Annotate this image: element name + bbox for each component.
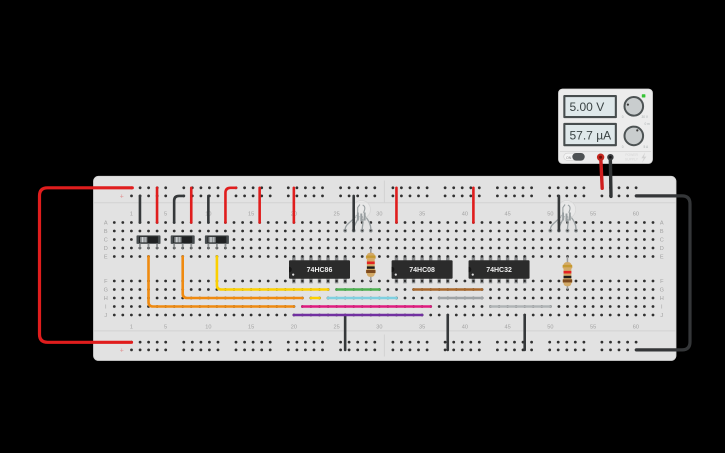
- svg-text:J: J: [104, 313, 107, 319]
- svg-text:1: 1: [130, 324, 133, 330]
- svg-text:74HC32: 74HC32: [486, 267, 512, 274]
- svg-text:D: D: [660, 246, 664, 252]
- svg-text:60: 60: [633, 212, 639, 218]
- svg-text:G: G: [104, 288, 108, 294]
- svg-text:H: H: [660, 296, 664, 302]
- svg-text:55: 55: [590, 324, 596, 330]
- svg-text:5: 5: [164, 212, 167, 218]
- svg-text:30: 30: [376, 324, 382, 330]
- svg-text:C: C: [660, 238, 664, 244]
- svg-text:B: B: [104, 229, 108, 235]
- svg-text:F: F: [104, 279, 108, 285]
- svg-text:ON: ON: [566, 156, 572, 160]
- svg-text:50: 50: [547, 212, 553, 218]
- svg-text:A: A: [660, 221, 664, 227]
- svg-text:A: A: [104, 221, 108, 227]
- svg-text:74HC86: 74HC86: [307, 267, 333, 274]
- svg-text:55: 55: [590, 212, 596, 218]
- svg-text:0: 0: [622, 115, 624, 119]
- svg-text:J: J: [660, 313, 663, 319]
- svg-text:50: 50: [547, 324, 553, 330]
- svg-text:45: 45: [504, 212, 510, 218]
- svg-text:C: C: [104, 238, 108, 244]
- svg-text:15: 15: [248, 212, 254, 218]
- svg-text:5: 5: [164, 324, 167, 330]
- svg-text:25: 25: [333, 212, 339, 218]
- svg-text:40: 40: [462, 324, 468, 330]
- svg-text:10: 10: [205, 324, 211, 330]
- svg-text:H: H: [104, 296, 108, 302]
- svg-text:1: 1: [130, 212, 133, 218]
- svg-text:35: 35: [419, 324, 425, 330]
- svg-text:E: E: [104, 255, 108, 261]
- svg-text:30 V: 30 V: [642, 115, 649, 119]
- svg-text:20: 20: [291, 324, 297, 330]
- svg-text:15: 15: [248, 324, 254, 330]
- svg-text:B: B: [660, 229, 664, 235]
- svg-text:45: 45: [504, 324, 510, 330]
- svg-text:30: 30: [376, 212, 382, 218]
- svg-text:0: 0: [622, 145, 624, 149]
- svg-text:57.7 µA: 57.7 µA: [570, 128, 612, 142]
- svg-text:74HC08: 74HC08: [409, 267, 435, 274]
- svg-text:D: D: [104, 246, 108, 252]
- svg-text:E: E: [660, 255, 664, 261]
- svg-text:35: 35: [419, 212, 425, 218]
- svg-text:5.00 V: 5.00 V: [570, 100, 605, 114]
- svg-text:60: 60: [633, 324, 639, 330]
- svg-text:G: G: [660, 288, 664, 294]
- svg-text:+: +: [120, 193, 124, 200]
- svg-text:40: 40: [462, 212, 468, 218]
- svg-text:25: 25: [333, 324, 339, 330]
- svg-text:SUPPLY: SUPPLY: [625, 157, 639, 161]
- svg-text:F: F: [660, 279, 664, 285]
- svg-text:0 m: 0 m: [645, 122, 651, 126]
- svg-text:+: +: [120, 348, 124, 355]
